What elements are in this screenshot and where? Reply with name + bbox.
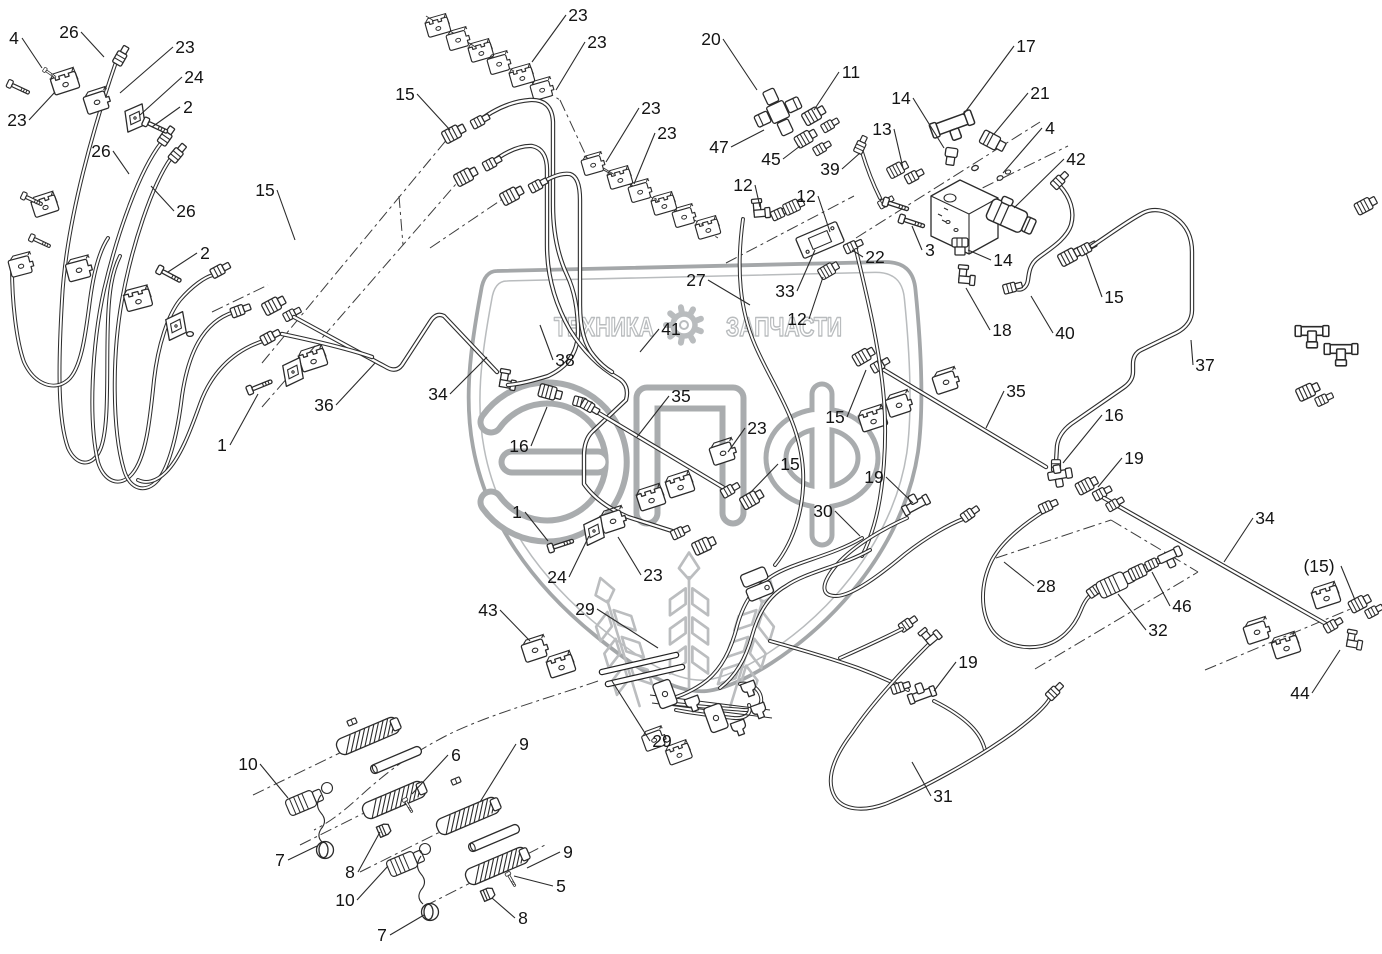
svg-text:17: 17	[1016, 36, 1035, 56]
svg-text:5: 5	[556, 876, 566, 896]
svg-text:23: 23	[175, 37, 194, 57]
svg-text:15: 15	[255, 180, 274, 200]
svg-text:12: 12	[796, 186, 815, 206]
svg-text:(15): (15)	[1303, 556, 1334, 576]
svg-text:12: 12	[787, 309, 806, 329]
svg-text:30: 30	[813, 501, 833, 521]
svg-text:23: 23	[657, 123, 676, 143]
svg-text:32: 32	[1148, 620, 1167, 640]
svg-text:9: 9	[563, 842, 573, 862]
svg-text:15: 15	[395, 84, 414, 104]
svg-text:4: 4	[1045, 118, 1055, 138]
svg-text:42: 42	[1066, 149, 1085, 169]
svg-text:8: 8	[345, 862, 355, 882]
svg-text:16: 16	[509, 436, 528, 456]
svg-text:8: 8	[518, 908, 528, 928]
svg-text:43: 43	[478, 600, 497, 620]
svg-text:33: 33	[775, 281, 794, 301]
svg-text:9: 9	[519, 734, 529, 754]
svg-text:26: 26	[91, 141, 110, 161]
svg-text:2: 2	[183, 97, 193, 117]
svg-text:7: 7	[377, 925, 387, 945]
svg-text:11: 11	[842, 62, 860, 82]
svg-text:34: 34	[1255, 508, 1275, 528]
svg-text:24: 24	[547, 567, 567, 587]
svg-text:15: 15	[1104, 287, 1123, 307]
svg-text:10: 10	[238, 754, 258, 774]
svg-text:23: 23	[568, 5, 587, 25]
svg-text:26: 26	[176, 201, 195, 221]
svg-text:1: 1	[512, 502, 522, 522]
svg-text:20: 20	[701, 29, 721, 49]
svg-text:1: 1	[217, 435, 227, 455]
svg-text:24: 24	[184, 67, 204, 87]
svg-text:39: 39	[820, 159, 839, 179]
svg-text:31: 31	[933, 786, 952, 806]
svg-text:7: 7	[275, 850, 285, 870]
svg-text:29: 29	[652, 731, 671, 751]
svg-text:19: 19	[1124, 448, 1143, 468]
svg-text:10: 10	[335, 890, 355, 910]
svg-text:27: 27	[686, 270, 705, 290]
svg-text:19: 19	[864, 467, 883, 487]
svg-text:ЗАПЧАСТИ: ЗАПЧАСТИ	[726, 312, 842, 342]
svg-text:6: 6	[451, 745, 461, 765]
svg-text:19: 19	[958, 652, 977, 672]
svg-text:23: 23	[641, 98, 660, 118]
svg-text:18: 18	[992, 320, 1011, 340]
svg-text:23: 23	[7, 110, 26, 130]
svg-text:38: 38	[555, 350, 574, 370]
svg-text:14: 14	[993, 250, 1013, 270]
svg-text:37: 37	[1195, 355, 1214, 375]
svg-text:3: 3	[925, 240, 935, 260]
svg-text:15: 15	[780, 454, 799, 474]
svg-text:15: 15	[825, 407, 844, 427]
svg-text:44: 44	[1290, 683, 1310, 703]
svg-text:47: 47	[709, 137, 728, 157]
svg-text:14: 14	[891, 88, 911, 108]
svg-text:4: 4	[9, 28, 19, 48]
svg-text:13: 13	[872, 119, 891, 139]
svg-text:12: 12	[733, 175, 752, 195]
svg-text:41: 41	[661, 319, 680, 339]
svg-text:40: 40	[1055, 323, 1075, 343]
svg-text:35: 35	[671, 386, 690, 406]
svg-text:29: 29	[575, 599, 594, 619]
svg-text:23: 23	[587, 32, 606, 52]
svg-text:23: 23	[747, 418, 766, 438]
svg-text:2: 2	[200, 243, 210, 263]
svg-text:22: 22	[865, 247, 884, 267]
svg-text:21: 21	[1030, 83, 1049, 103]
svg-text:26: 26	[59, 22, 78, 42]
svg-text:28: 28	[1036, 576, 1055, 596]
svg-text:35: 35	[1006, 381, 1025, 401]
svg-text:34: 34	[428, 384, 448, 404]
svg-text:36: 36	[314, 395, 333, 415]
svg-text:16: 16	[1104, 405, 1123, 425]
svg-text:23: 23	[643, 565, 662, 585]
svg-text:46: 46	[1172, 596, 1191, 616]
svg-text:45: 45	[761, 149, 780, 169]
